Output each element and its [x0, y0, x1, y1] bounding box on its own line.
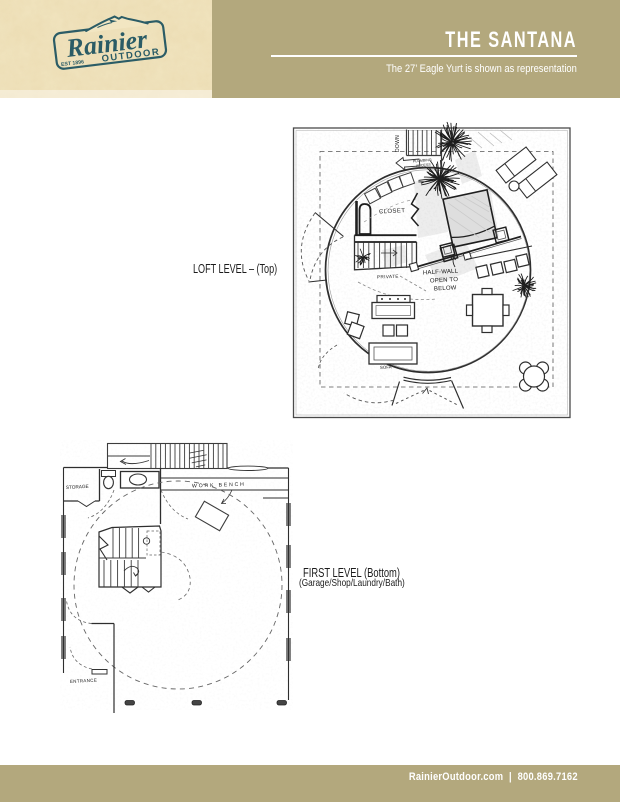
svg-text:BELOW: BELOW [434, 285, 457, 292]
svg-text:PRIVATE: PRIVATE [377, 274, 399, 280]
svg-text:SOFA: SOFA [380, 364, 392, 370]
svg-text:DOWN: DOWN [395, 135, 401, 152]
